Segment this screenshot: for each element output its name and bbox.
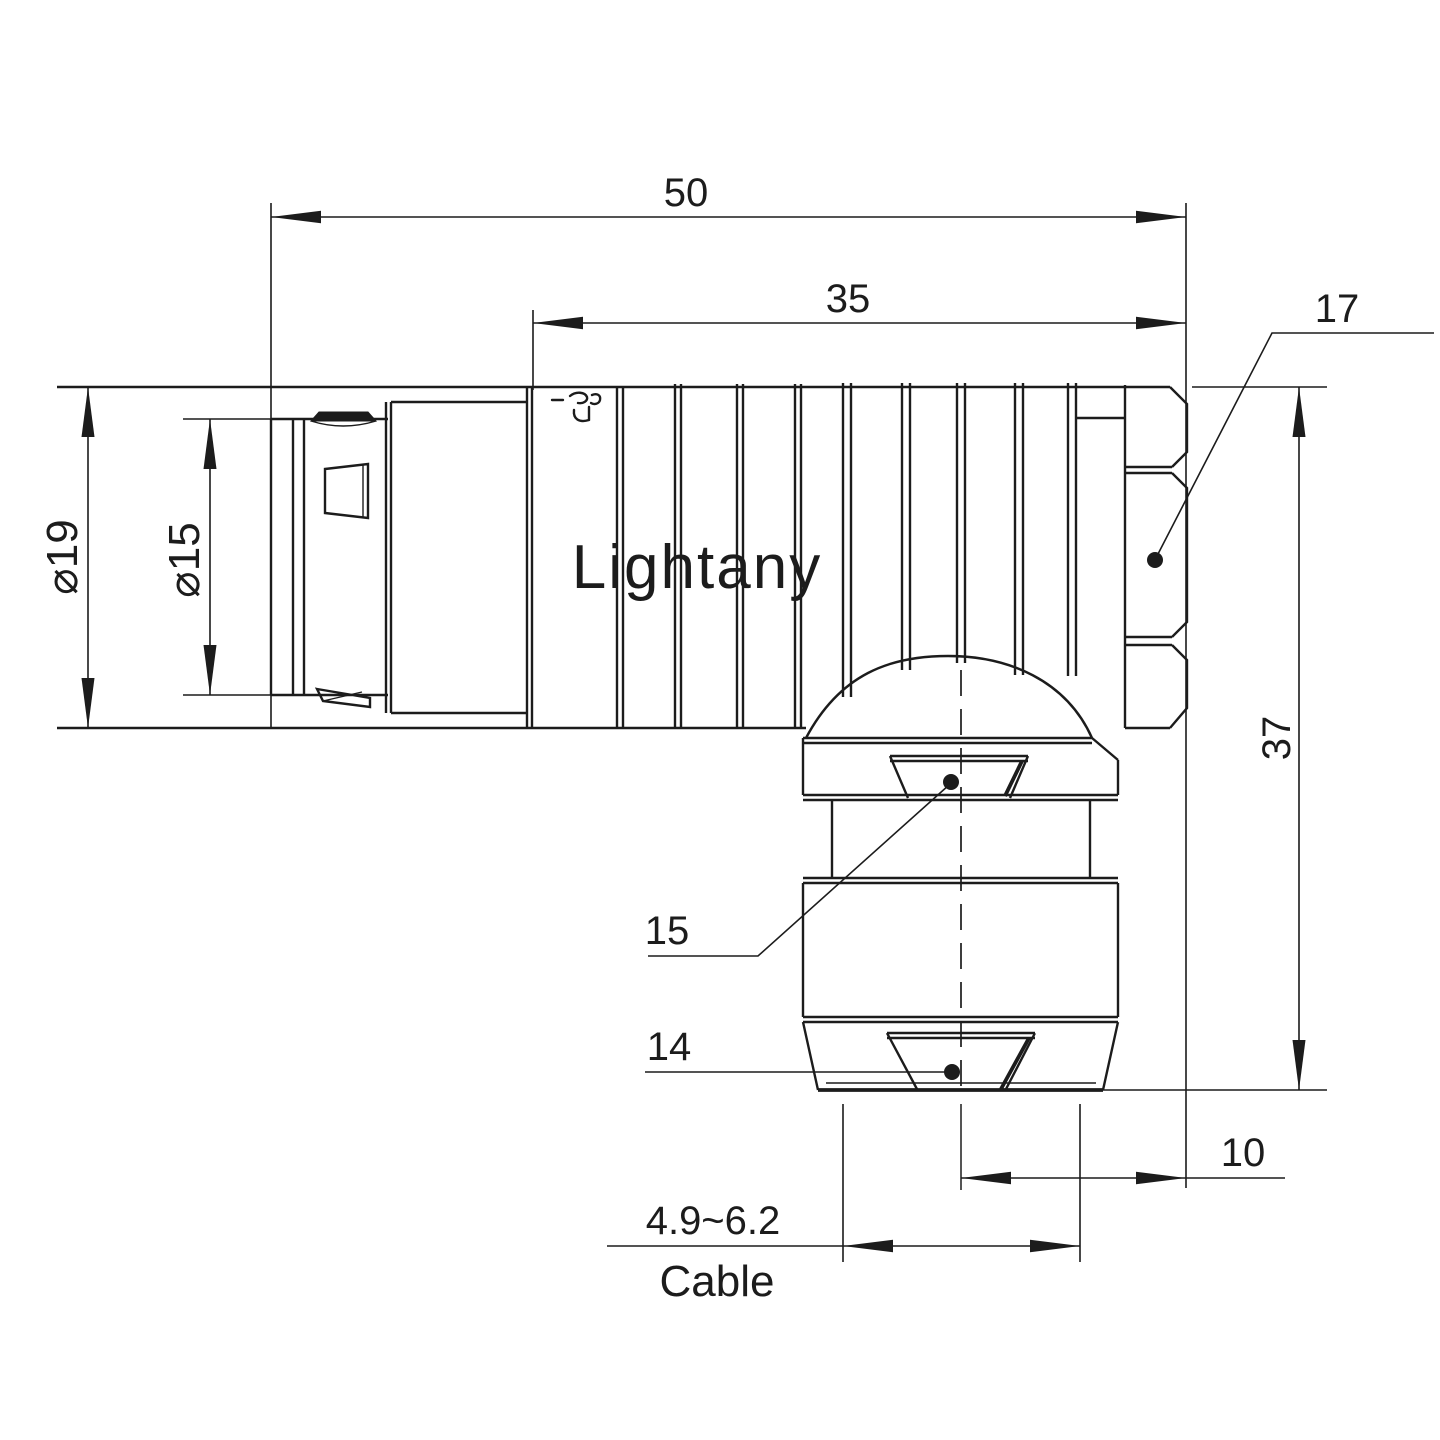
label-17-text: 17 xyxy=(1315,287,1360,331)
arrowhead-up-icon xyxy=(1293,387,1306,437)
dim-37-label: 37 xyxy=(1255,716,1299,761)
dim-50-label: 50 xyxy=(664,171,709,215)
arrowhead-up-icon xyxy=(82,387,95,437)
arrowhead-left-icon xyxy=(961,1172,1011,1184)
dim-35-lines xyxy=(533,310,1186,390)
lightany-logo-mark-icon xyxy=(552,393,600,421)
connector-detail-paths xyxy=(311,421,1096,1083)
arrowhead-up-icon xyxy=(204,419,217,469)
dimension-overall-height: 37 xyxy=(1103,387,1327,1090)
arrowhead-right-icon xyxy=(1030,1240,1080,1252)
connector-technical-drawing: Lightany 50 35 ⌀19 ⌀15 xyxy=(0,0,1440,1440)
dimension-front-diameter: ⌀15 xyxy=(160,419,271,695)
leader-dot-icon xyxy=(943,774,959,790)
label-15-leader xyxy=(648,785,949,956)
dimension-axis-to-end: 10 xyxy=(961,1131,1285,1184)
drawing-canvas: Lightany 50 35 ⌀19 ⌀15 xyxy=(0,0,1440,1440)
arrowhead-left-icon xyxy=(843,1240,893,1252)
dimension-body-length: 35 xyxy=(533,277,1186,390)
leader-dot-icon xyxy=(1147,552,1163,568)
arrowhead-right-icon xyxy=(1136,211,1186,223)
label-17-leader xyxy=(1158,333,1434,554)
arrowhead-down-icon xyxy=(1293,1040,1306,1090)
dim-cable-word-label: Cable xyxy=(660,1257,775,1306)
arrowhead-down-icon xyxy=(204,645,217,695)
latch-bump xyxy=(311,412,376,421)
arrowhead-left-icon xyxy=(271,211,321,223)
connector-body-paths xyxy=(57,383,1187,1091)
label-15-text: 15 xyxy=(645,909,690,953)
connector-outline xyxy=(57,383,1187,1190)
watermark-text: Lightany xyxy=(572,533,822,602)
dim-10-label: 10 xyxy=(1221,1131,1266,1175)
dimension-outer-diameter: ⌀19 xyxy=(38,387,95,728)
dim-dia19-label: ⌀19 xyxy=(38,519,87,594)
dimension-cable-range: 4.9~6.2 Cable xyxy=(607,1104,1080,1306)
dim-35-label: 35 xyxy=(826,277,871,321)
dim-50-lines xyxy=(271,203,1186,1188)
arrowhead-right-icon xyxy=(1136,317,1186,329)
leader-dot-icon xyxy=(944,1064,960,1080)
arrowhead-left-icon xyxy=(533,317,583,329)
arrowhead-right-icon xyxy=(1136,1172,1186,1184)
label-14-text: 14 xyxy=(647,1025,692,1069)
dim-cable-range-label: 4.9~6.2 xyxy=(646,1199,781,1243)
dim-dia15-label: ⌀15 xyxy=(160,522,209,597)
arrowhead-down-icon xyxy=(82,678,95,728)
label-hex-nut: 17 xyxy=(1147,287,1434,568)
